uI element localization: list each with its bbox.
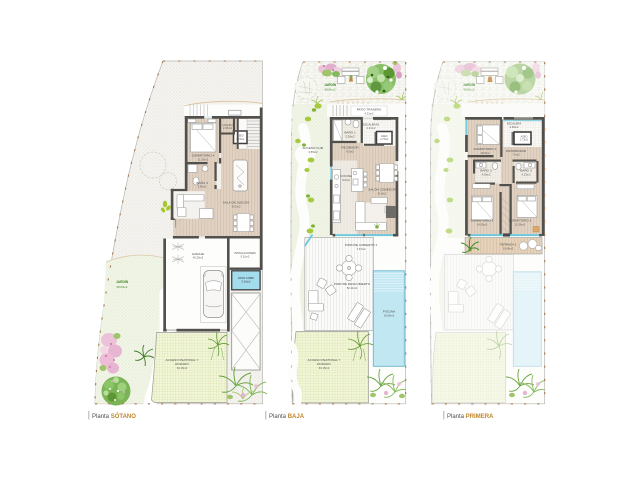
- svg-text:4.09m2: 4.09m2: [482, 172, 491, 176]
- svg-text:98.61m2: 98.61m2: [325, 88, 336, 92]
- svg-text:JARDÍN: JARDÍN: [324, 82, 337, 87]
- svg-text:5.11m2: 5.11m2: [241, 255, 250, 259]
- svg-text:PORCHE DESCUBIERTO: PORCHE DESCUBIERTO: [334, 282, 371, 286]
- svg-text:11.50m2: 11.50m2: [515, 222, 526, 226]
- svg-text:5.28m2: 5.28m2: [346, 134, 355, 138]
- svg-text:DORMITORIO 4: DORMITORIO 4: [192, 154, 215, 158]
- svg-text:52.41m2: 52.41m2: [347, 286, 358, 290]
- svg-text:DISTRIBUIDOR: DISTRIBUIDOR: [506, 149, 526, 153]
- svg-text:BAÑO 4: BAÑO 4: [196, 180, 208, 185]
- svg-text:9.5m2: 9.5m2: [346, 149, 354, 153]
- svg-text:3.95m2: 3.95m2: [198, 185, 207, 189]
- svg-text:40.25m2: 40.25m2: [193, 256, 204, 260]
- svg-text:Planta SÓTANO: Planta SÓTANO: [92, 412, 136, 420]
- svg-text:2.73m2: 2.73m2: [520, 139, 529, 142]
- svg-text:VASO COMP.: VASO COMP.: [238, 276, 255, 280]
- svg-text:31.8m2: 31.8m2: [378, 191, 387, 195]
- svg-text:19.69m2: 19.69m2: [384, 313, 395, 317]
- svg-text:63.15m2: 63.15m2: [319, 366, 330, 370]
- svg-text:BAÑO 1: BAÑO 1: [344, 130, 356, 135]
- svg-text:TERRAZA 1: TERRAZA 1: [500, 243, 517, 247]
- svg-text:BAÑO 3: BAÑO 3: [520, 168, 532, 173]
- svg-text:9.9m2: 9.9m2: [342, 178, 350, 182]
- svg-text:4.21m2: 4.21m2: [367, 126, 376, 130]
- svg-text:JARDÍN: JARDÍN: [116, 279, 129, 284]
- svg-text:ACCESO CUB.: ACCESO CUB.: [302, 146, 323, 150]
- svg-text:PORCHE CUBIERTO 1: PORCHE CUBIERTO 1: [345, 243, 378, 247]
- svg-text:16.5m2: 16.5m2: [481, 151, 490, 155]
- svg-text:2.05m2: 2.05m2: [223, 126, 232, 130]
- svg-text:2.73m2: 2.73m2: [380, 138, 389, 141]
- svg-text:BAÑO 2: BAÑO 2: [480, 168, 492, 173]
- svg-text:DORMITORIO 2: DORMITORIO 2: [509, 219, 532, 223]
- svg-text:ESCALERAS: ESCALERAS: [363, 123, 379, 127]
- svg-text:3.10m2: 3.10m2: [242, 280, 251, 284]
- svg-text:3.69m2: 3.69m2: [510, 125, 519, 129]
- svg-text:4.21m2: 4.21m2: [365, 112, 374, 116]
- svg-text:DORMITORIO 1: DORMITORIO 1: [471, 219, 494, 223]
- svg-text:Planta PRIMERA: Planta PRIMERA: [447, 414, 494, 420]
- svg-text:COCINA: COCINA: [340, 174, 353, 178]
- svg-text:10.66m2: 10.66m2: [503, 246, 514, 250]
- svg-text:39.2m2: 39.2m2: [232, 205, 241, 209]
- svg-text:98.61m2: 98.61m2: [464, 88, 475, 92]
- svg-text:PATIO TRASERO: PATIO TRASERO: [357, 108, 382, 112]
- svg-text:RODADO: RODADO: [175, 362, 189, 366]
- svg-text:INSTALACIONES: INSTALACIONES: [234, 251, 256, 255]
- svg-text:63.15m2: 63.15m2: [177, 366, 188, 370]
- svg-text:RODADO: RODADO: [317, 362, 331, 366]
- svg-text:Planta BAJA: Planta BAJA: [269, 414, 305, 420]
- svg-text:DORMITORIO 3: DORMITORIO 3: [474, 147, 497, 151]
- svg-text:14.05m2: 14.05m2: [477, 222, 488, 226]
- svg-text:11.33m2: 11.33m2: [198, 158, 209, 162]
- svg-text:98.64m2: 98.64m2: [117, 285, 128, 289]
- svg-text:SALÓN COMEDOR: SALÓN COMEDOR: [368, 187, 396, 192]
- svg-text:3.55m2: 3.55m2: [309, 150, 318, 154]
- svg-text:SALA DE JUEGOS: SALA DE JUEGOS: [223, 201, 249, 205]
- svg-text:7.6m2: 7.6m2: [512, 153, 520, 157]
- svg-text:4.23m2: 4.23m2: [522, 172, 531, 176]
- svg-text:GARAJE: GARAJE: [192, 252, 204, 256]
- svg-text:PISCINA: PISCINA: [383, 310, 396, 314]
- svg-text:RECIBIDOR: RECIBIDOR: [341, 146, 359, 150]
- svg-text:7.47m2: 7.47m2: [357, 247, 366, 251]
- svg-text:JARDÍN: JARDÍN: [463, 82, 476, 87]
